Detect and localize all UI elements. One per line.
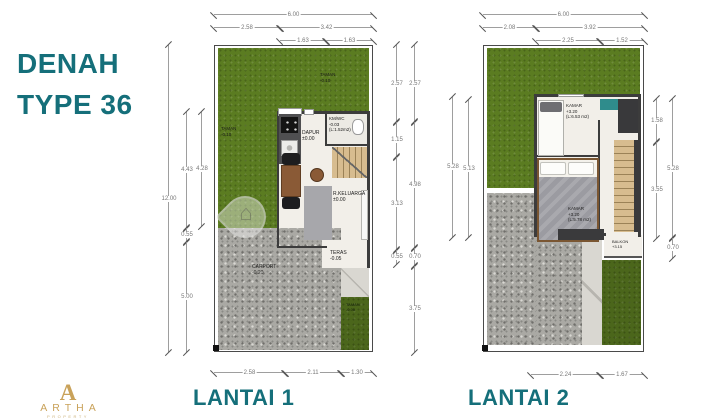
pillow xyxy=(568,162,594,175)
label-balkon: BALKON +3.15 xyxy=(612,239,628,249)
dimension: 2.25 xyxy=(536,40,600,41)
dimension: 3.55 xyxy=(656,142,657,238)
label-kamar1: KAMAR +3.20 (L:6.53 m2) xyxy=(566,103,589,120)
label-carport: CARPORT -0.20 xyxy=(252,264,276,277)
dimension: 4.28 xyxy=(201,112,202,226)
dimension: 2.24 xyxy=(531,374,600,375)
dining-table xyxy=(281,165,301,197)
plan2-carport-roof xyxy=(487,193,536,345)
stove-icon xyxy=(281,117,298,133)
dimension: 2.58 xyxy=(214,27,280,28)
label-kmwc: KM/WC -0.03 (L:1.52m2) xyxy=(329,116,351,133)
label-teras: TERAS -0.05 xyxy=(330,250,347,263)
dimension: 6.00 xyxy=(483,14,644,15)
dimension: 1.15 xyxy=(396,122,397,157)
wall xyxy=(325,113,327,144)
dimension: 5.28 xyxy=(672,99,673,238)
dimension: 1.58 xyxy=(656,99,657,142)
column-marker xyxy=(482,345,488,351)
wardrobe xyxy=(618,99,638,133)
window xyxy=(304,109,314,115)
dimension: 3.92 xyxy=(536,27,644,28)
label-kamar2: KAMAR +3.20 (L:5.78 m2) xyxy=(568,206,591,223)
plan2-title: LANTAI 2 xyxy=(468,385,569,411)
dimension: 0.55 xyxy=(396,250,397,264)
dimension: 1.52 xyxy=(600,40,644,41)
dimension: 2.11 xyxy=(285,372,341,373)
column-marker xyxy=(213,345,219,351)
artha-logo: A ARTHA PROPERTY xyxy=(18,383,118,419)
dimension: 3.75 xyxy=(414,266,415,352)
dimension: 1.30 xyxy=(341,372,373,373)
plan2-carport-roof xyxy=(536,237,582,345)
wall xyxy=(277,246,327,248)
dimension: 2.58 xyxy=(214,372,285,373)
house-icon: ⌂ xyxy=(219,200,273,226)
dimension: 1.63 xyxy=(326,40,373,41)
dimension: 3.13 xyxy=(396,157,397,250)
plan2-roof-plane xyxy=(582,237,602,345)
dimension: 1.63 xyxy=(280,40,326,41)
floor-plan-canvas: DENAH TYPE 36 TAMAN -0.10 TAMAN -0.10 DA… xyxy=(0,0,720,420)
window xyxy=(558,94,584,97)
page-title: DENAH TYPE 36 xyxy=(17,44,133,125)
dimension: 2.08 xyxy=(483,27,536,28)
plan2-garden-rear xyxy=(602,260,641,345)
coffee-table xyxy=(310,168,324,182)
dimension: 2.57 xyxy=(396,45,397,122)
dimension: 0.70 xyxy=(672,238,673,258)
dimension: 5.13 xyxy=(468,100,469,237)
plan1-title: LANTAI 1 xyxy=(193,385,294,411)
dimension: 5.28 xyxy=(452,97,453,237)
plan1-side-path xyxy=(341,268,369,297)
plan2-garden-side xyxy=(487,48,536,188)
dining-chair xyxy=(282,197,300,209)
dimension: 4.43 xyxy=(186,112,187,228)
page-title-line1: DENAH xyxy=(17,44,133,85)
dimension: 12.00 xyxy=(168,45,169,352)
watermark-shield-icon: ⌂ xyxy=(219,192,273,256)
page-title-line2: TYPE 36 xyxy=(17,85,133,126)
dimension: 6.00 xyxy=(214,14,373,15)
toilet-icon xyxy=(352,119,364,135)
staircase xyxy=(614,140,634,232)
label-keluarga: R.KELUARGA ±0.00 xyxy=(333,191,365,204)
dining-chair xyxy=(282,153,300,165)
stair-railing xyxy=(634,140,640,232)
label-taman-front: TAMAN -0.10 xyxy=(320,72,335,83)
wall xyxy=(536,94,640,97)
pillow xyxy=(540,102,562,112)
logo-subtitle: PROPERTY xyxy=(18,414,118,419)
label-dapur: DAPUR ±0.00 xyxy=(302,130,320,143)
logo-monogram-icon: A xyxy=(18,383,118,403)
dimension: 4.98 xyxy=(414,122,415,248)
dimension: 2.57 xyxy=(414,45,415,122)
logo-name: ARTHA xyxy=(18,403,118,414)
label-taman-rear: TAMAN -0.05 xyxy=(346,302,360,312)
label-taman-side: TAMAN -0.10 xyxy=(221,126,236,137)
living-room-rug xyxy=(304,186,332,240)
dimension: 1.67 xyxy=(600,374,644,375)
teal-cabinet xyxy=(600,99,618,110)
dimension: 3.42 xyxy=(280,27,373,28)
dimension: 5.00 xyxy=(186,242,187,352)
bedroom-cabinet xyxy=(558,229,604,240)
staircase xyxy=(332,147,367,178)
wall xyxy=(325,144,369,146)
pillow xyxy=(540,162,566,175)
